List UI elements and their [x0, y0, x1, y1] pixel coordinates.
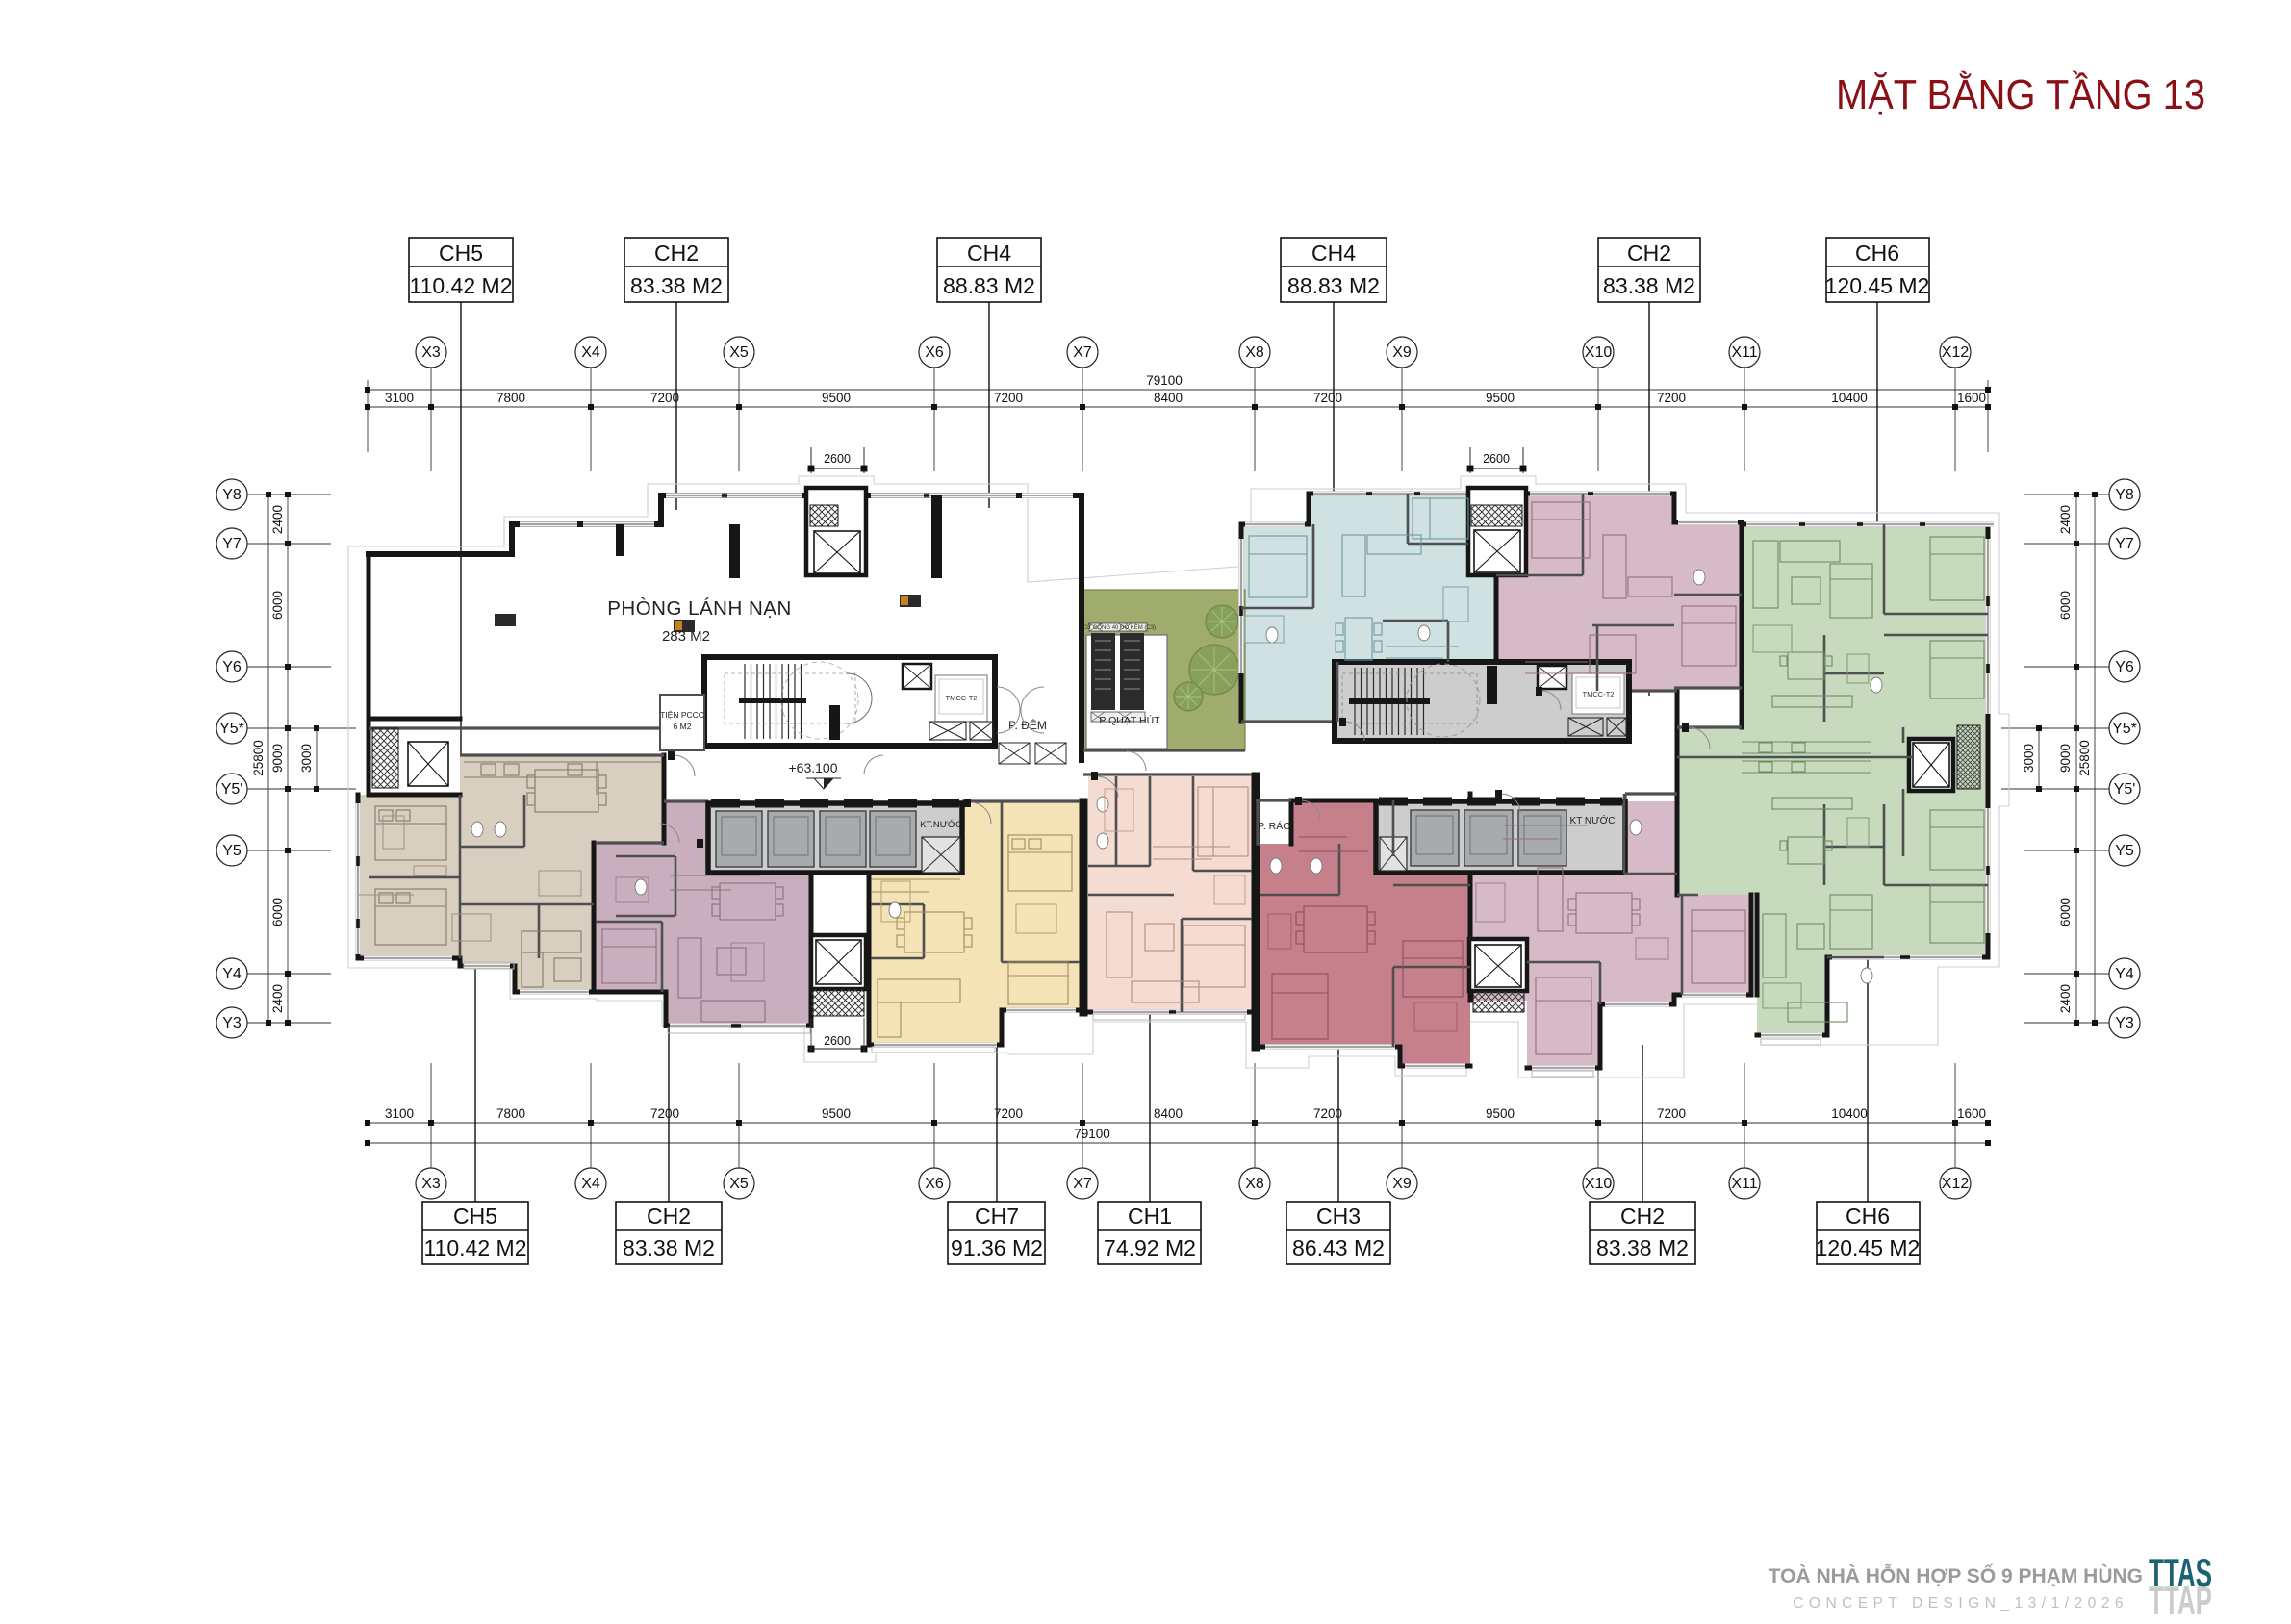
svg-text:CH1: CH1: [1128, 1204, 1172, 1229]
svg-text:TMCC-T2: TMCC-T2: [1583, 690, 1615, 698]
svg-text:86.43 M2: 86.43 M2: [1292, 1235, 1385, 1260]
svg-text:83.38 M2: 83.38 M2: [623, 1235, 715, 1260]
svg-text:CH5: CH5: [453, 1204, 497, 1229]
svg-text:7200: 7200: [994, 391, 1023, 405]
svg-text:3100: 3100: [385, 1106, 414, 1121]
svg-text:10400: 10400: [1831, 1106, 1868, 1121]
svg-text:TIỆN PCCC: TIỆN PCCC: [660, 710, 704, 720]
svg-text:7200: 7200: [650, 1106, 679, 1121]
svg-text:10400: 10400: [1831, 391, 1868, 405]
svg-text:Y5*: Y5*: [2112, 721, 2137, 737]
svg-text:9500: 9500: [1486, 391, 1515, 405]
svg-text:Y7: Y7: [2115, 536, 2134, 552]
svg-text:6 M2: 6 M2: [674, 722, 692, 731]
svg-text:25800: 25800: [251, 740, 266, 776]
svg-text:7200: 7200: [1313, 391, 1342, 405]
svg-text:Y8: Y8: [2115, 487, 2134, 503]
svg-text:3000: 3000: [2022, 744, 2036, 773]
svg-text:Y5': Y5': [221, 781, 243, 798]
svg-text:PHÒNG LÁNH NẠN: PHÒNG LÁNH NẠN: [607, 597, 792, 620]
svg-text:9000: 9000: [270, 744, 285, 773]
svg-text:2400: 2400: [270, 505, 285, 534]
svg-text:8400: 8400: [1154, 1106, 1183, 1121]
svg-text:X9: X9: [1392, 1176, 1412, 1192]
svg-text:CH6: CH6: [1855, 241, 1899, 266]
svg-text:MẶT BẰNG TẦNG 13: MẶT BẰNG TẦNG 13: [1836, 70, 2205, 118]
svg-text:CH6: CH6: [1846, 1204, 1890, 1229]
svg-text:X12: X12: [1942, 1176, 1970, 1192]
svg-text:Y3: Y3: [2115, 1015, 2134, 1031]
svg-text:7800: 7800: [496, 391, 525, 405]
svg-text:X12: X12: [1942, 344, 1970, 361]
svg-text:25800: 25800: [2077, 740, 2092, 776]
svg-text:110.42 M2: 110.42 M2: [424, 1235, 527, 1260]
svg-text:X4: X4: [581, 344, 600, 361]
svg-text:TOÀ NHÀ HỖN HỢP SỐ 9 PHẠM HÙNG: TOÀ NHÀ HỖN HỢP SỐ 9 PHẠM HÙNG: [1769, 1564, 2143, 1587]
svg-text:9500: 9500: [822, 391, 851, 405]
svg-text:X6: X6: [925, 344, 944, 361]
svg-text:7200: 7200: [1657, 391, 1686, 405]
svg-text:X4: X4: [581, 1176, 600, 1192]
svg-text:6000: 6000: [270, 591, 285, 620]
svg-text:KT.NƯỚC: KT.NƯỚC: [920, 820, 962, 830]
svg-text:2600: 2600: [824, 452, 851, 466]
svg-text:X8: X8: [1245, 1176, 1264, 1192]
svg-text:Y6: Y6: [222, 659, 242, 675]
svg-text:Y5': Y5': [2114, 781, 2136, 798]
svg-text:X10: X10: [1585, 1176, 1613, 1192]
svg-text:7200: 7200: [650, 391, 679, 405]
svg-text:2600: 2600: [1483, 452, 1510, 466]
svg-text:Y5: Y5: [222, 843, 242, 859]
svg-text:83.38 M2: 83.38 M2: [1596, 1235, 1689, 1260]
svg-text:2400: 2400: [2058, 505, 2073, 534]
svg-text:110.42 M2: 110.42 M2: [410, 273, 513, 298]
svg-text:Y8: Y8: [222, 487, 242, 503]
svg-text:6000: 6000: [2058, 898, 2073, 926]
svg-text:CH2: CH2: [654, 241, 699, 266]
svg-text:CH4: CH4: [967, 241, 1011, 266]
svg-text:P QUẠT HÚT: P QUẠT HÚT: [1099, 714, 1160, 726]
svg-text:7800: 7800: [496, 1106, 525, 1121]
svg-text:120.45 M2: 120.45 M2: [1825, 273, 1930, 298]
svg-text:2600: 2600: [824, 1034, 851, 1048]
svg-text:1600: 1600: [1957, 391, 1986, 405]
svg-text:KT NƯỚC: KT NƯỚC: [1570, 814, 1616, 826]
svg-text:3000: 3000: [299, 744, 314, 773]
svg-text:3100: 3100: [385, 391, 414, 405]
svg-text:88.83 M2: 88.83 M2: [1287, 273, 1380, 298]
svg-text:1600: 1600: [1957, 1106, 1986, 1121]
svg-text:120.45 M2: 120.45 M2: [1816, 1235, 1921, 1260]
svg-text:6000: 6000: [270, 898, 285, 926]
svg-text:8400: 8400: [1154, 391, 1183, 405]
svg-text:83.38 M2: 83.38 M2: [1603, 273, 1695, 298]
svg-text:X8: X8: [1245, 344, 1264, 361]
svg-text:Y3: Y3: [222, 1015, 242, 1031]
svg-text:X5: X5: [729, 1176, 749, 1192]
svg-text:9500: 9500: [822, 1106, 851, 1121]
svg-text:X3: X3: [421, 344, 441, 361]
svg-text:83.38 M2: 83.38 M2: [630, 273, 723, 298]
svg-text:Y6: Y6: [2115, 659, 2134, 675]
svg-text:CH2: CH2: [1627, 241, 1671, 266]
svg-text:X11: X11: [1731, 344, 1757, 361]
svg-text:Y4: Y4: [2115, 966, 2134, 982]
svg-text:9500: 9500: [1486, 1106, 1515, 1121]
svg-text:2400: 2400: [270, 984, 285, 1013]
svg-text:TTAP: TTAP: [2149, 1579, 2212, 1619]
svg-text:X7: X7: [1073, 1176, 1092, 1192]
svg-text:7200: 7200: [994, 1106, 1023, 1121]
svg-text:CỬ CỔNG 40 ĐỘ KÈM (C3): CỬ CỔNG 40 ĐỘ KÈM (C3): [1082, 624, 1156, 631]
svg-text:CH2: CH2: [1620, 1204, 1665, 1229]
svg-text:79100: 79100: [1074, 1127, 1110, 1141]
svg-text:P. RÁC: P. RÁC: [1258, 820, 1290, 832]
svg-text:X6: X6: [925, 1176, 944, 1192]
svg-text:CH7: CH7: [975, 1204, 1019, 1229]
svg-text:X7: X7: [1073, 344, 1092, 361]
svg-text:X9: X9: [1392, 344, 1412, 361]
svg-text:CH5: CH5: [439, 241, 483, 266]
svg-text:283 M2: 283 M2: [662, 628, 710, 645]
svg-text:79100: 79100: [1146, 373, 1183, 388]
svg-text:TMCC-T2: TMCC-T2: [946, 694, 978, 702]
svg-text:91.36 M2: 91.36 M2: [951, 1235, 1043, 1260]
svg-text:Y4: Y4: [222, 966, 242, 982]
svg-text:X11: X11: [1731, 1176, 1757, 1192]
svg-text:CONCEPT DESIGN_13/1/2026: CONCEPT DESIGN_13/1/2026: [1793, 1595, 2128, 1611]
svg-text:7200: 7200: [1657, 1106, 1686, 1121]
svg-text:CH4: CH4: [1311, 241, 1356, 266]
svg-text:X3: X3: [421, 1176, 441, 1192]
svg-text:+63.100: +63.100: [789, 760, 838, 775]
svg-text:74.92 M2: 74.92 M2: [1104, 1235, 1196, 1260]
svg-text:Y5*: Y5*: [219, 721, 244, 737]
svg-text:Y5: Y5: [2115, 843, 2134, 859]
svg-text:CH2: CH2: [647, 1204, 691, 1229]
svg-text:CH3: CH3: [1316, 1204, 1361, 1229]
svg-text:X10: X10: [1585, 344, 1613, 361]
svg-text:9000: 9000: [2058, 744, 2073, 773]
svg-text:6000: 6000: [2058, 591, 2073, 620]
svg-text:X5: X5: [729, 344, 749, 361]
svg-text:88.83 M2: 88.83 M2: [943, 273, 1035, 298]
svg-text:Y7: Y7: [222, 536, 242, 552]
svg-text:2400: 2400: [2058, 984, 2073, 1013]
